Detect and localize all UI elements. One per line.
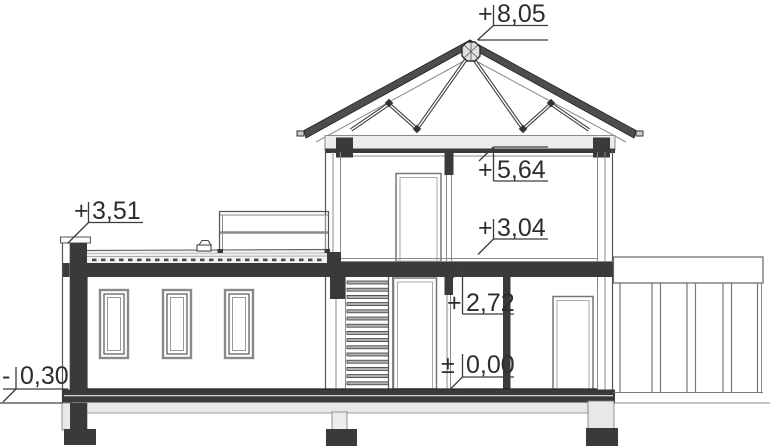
stair-tread	[347, 317, 389, 320]
level-sign: +	[478, 0, 493, 28]
foundation	[0, 389, 770, 446]
staircase	[347, 281, 389, 385]
level-value: 5,64	[497, 156, 546, 184]
hatch-dash	[245, 259, 250, 262]
hall-door	[394, 278, 437, 389]
stair-tread	[347, 367, 389, 370]
level-value: 3,04	[497, 214, 546, 242]
ridge-plate	[462, 42, 480, 61]
ring-beam-left	[336, 138, 353, 158]
level-sign: +	[478, 214, 493, 242]
hatch-dash	[182, 259, 187, 262]
stair-tread	[347, 288, 389, 291]
eave-detail-left	[297, 131, 304, 136]
gable-roof	[297, 40, 643, 142]
hatch-dash	[218, 259, 223, 262]
flat-roof	[87, 241, 330, 264]
window	[225, 290, 253, 358]
hatch-dash	[101, 259, 106, 262]
pergola-fence	[614, 257, 764, 393]
right-room-door	[553, 297, 593, 390]
footing-center	[326, 412, 357, 446]
level-marker-ridge: + 8,05	[478, 0, 549, 40]
sub-base	[72, 403, 588, 414]
hatch-dash	[155, 259, 160, 262]
ground-room-windows	[100, 290, 253, 358]
window	[163, 290, 191, 358]
footing-right	[586, 401, 618, 446]
pergola-beam	[614, 257, 764, 283]
section-svg: + 8,05 + 5,64 + 3,51 + 3,04 + 2,72 ± 0,0…	[0, 0, 770, 448]
hatch-dash	[200, 259, 205, 262]
hatch-dash	[92, 259, 97, 262]
hatch-dash	[254, 259, 259, 262]
ring-beam-right	[593, 138, 610, 158]
hatch-dash	[209, 259, 214, 262]
stair-tread	[347, 375, 389, 378]
fence-slats	[620, 283, 758, 393]
stair-tread	[347, 331, 389, 334]
upper-partition	[445, 152, 454, 262]
hatch-dash	[290, 259, 295, 262]
stair-wall	[326, 277, 346, 389]
level-sign: ±	[441, 351, 455, 379]
terrace-railing	[218, 212, 331, 254]
second-floor	[326, 150, 613, 262]
stair-tread	[347, 324, 389, 327]
parapet-cap	[61, 237, 91, 243]
stair-tread	[347, 281, 389, 284]
hatch-dash	[263, 259, 268, 262]
attic-slab	[325, 136, 615, 158]
hatch-dash	[128, 259, 133, 262]
level-value: 0,30	[20, 362, 69, 390]
hatch-dash	[236, 259, 241, 262]
stair-tread	[347, 339, 389, 342]
eave-detail-right	[636, 131, 643, 136]
window	[100, 290, 128, 358]
hatch-dash	[110, 259, 115, 262]
stair-tread	[347, 295, 389, 298]
wall-left-upper	[326, 150, 341, 262]
stair-tread	[347, 353, 389, 356]
level-value: 0,00	[466, 351, 515, 379]
hatch-dash	[227, 259, 232, 262]
stair-tread	[347, 382, 389, 385]
level-marker-terrain: - 0,30	[2, 362, 69, 402]
hatch-dash	[146, 259, 151, 262]
hatch-dash	[299, 259, 304, 262]
hatch-dash	[119, 259, 124, 262]
level-value: 3,51	[92, 197, 141, 225]
wall-junction-block	[327, 252, 341, 265]
roof-vent	[197, 241, 211, 252]
level-sign: -	[2, 362, 10, 390]
level-sign: +	[74, 197, 89, 225]
hatch-dash	[281, 259, 286, 262]
stair-tread	[347, 303, 389, 306]
stair-tread	[347, 310, 389, 313]
wall-right-upper	[598, 150, 613, 262]
level-sign: +	[447, 289, 462, 317]
hatch-dash	[173, 259, 178, 262]
level-value: 2,72	[466, 289, 515, 317]
level-value: 8,05	[497, 0, 546, 28]
stair-tread	[347, 346, 389, 349]
truss-webs	[351, 58, 589, 133]
level-marker-first-floor: + 3,04	[478, 214, 548, 255]
upper-door	[396, 174, 441, 262]
cross-section-drawing: + 8,05 + 5,64 + 3,51 + 3,04 + 2,72 ± 0,0…	[0, 0, 770, 448]
hatch-dash	[164, 259, 169, 262]
stair-tread	[347, 360, 389, 363]
hatch-dash	[137, 259, 142, 262]
hatch-dash	[191, 259, 196, 262]
hatch-dash	[308, 259, 313, 262]
hatch-dash	[317, 259, 322, 262]
hatch-dash	[272, 259, 277, 262]
